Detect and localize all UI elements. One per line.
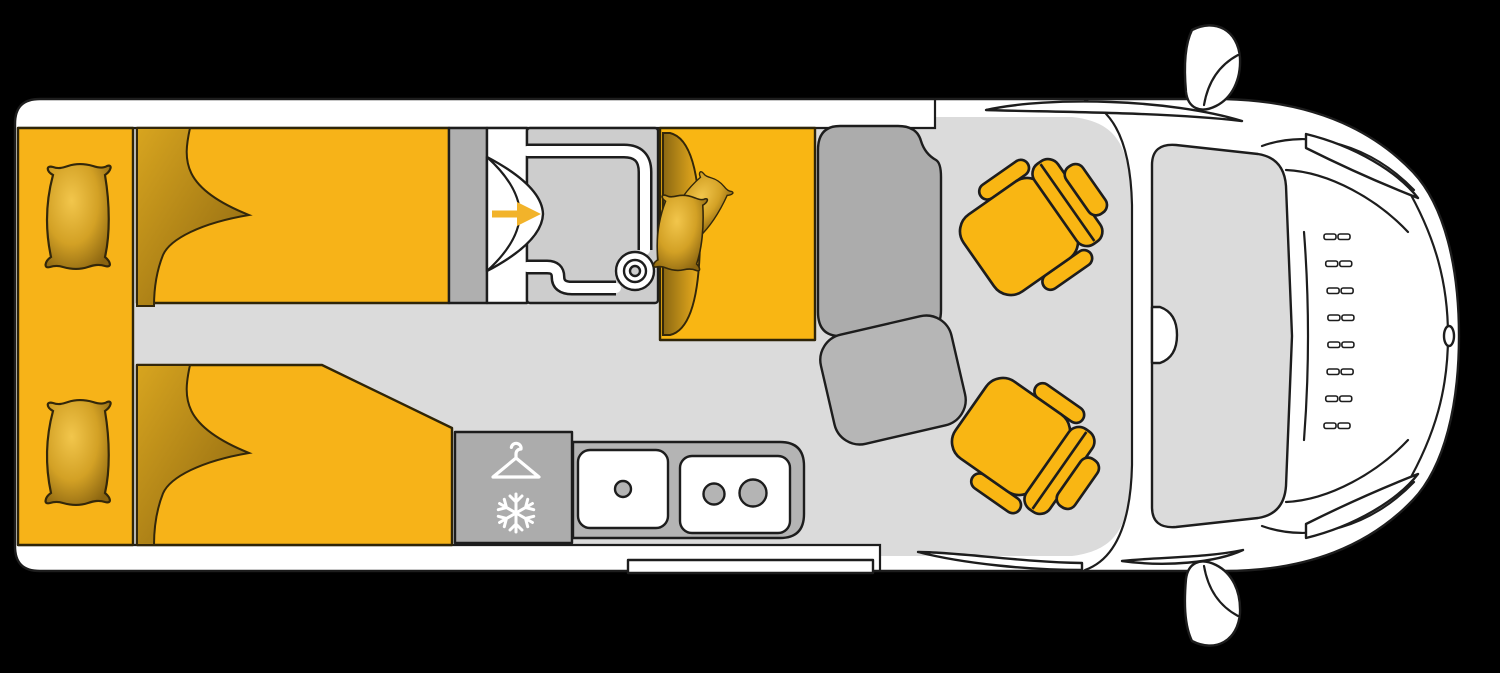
grille-slat [1328,315,1340,321]
grille-slat [1341,369,1353,375]
stove-burner-small [704,484,725,505]
bed-top-pillow [46,164,111,269]
grille-slat [1338,234,1350,240]
side-mirror-top [1185,25,1240,109]
floorplan-stage [0,0,1500,673]
grille-slat [1342,315,1354,321]
grille-slat [1327,369,1339,375]
shower-drain [616,252,654,290]
wardrobe-strip [449,128,487,303]
grille-slat [1324,423,1336,429]
dinette-table [818,126,941,336]
grille-slat [1324,234,1336,240]
brand-emblem [1444,326,1454,346]
bed-bottom-pillow [46,400,111,505]
stove-burner-large [740,480,767,507]
grille-slat [1327,288,1339,294]
entry-step [628,560,873,573]
bathroom [487,128,658,303]
grille-slat [1326,396,1338,402]
side-mirror-bottom [1185,561,1240,645]
grille-slat [1340,261,1352,267]
grille-slat [1328,342,1340,348]
grille-slat [1341,288,1353,294]
sink-drain [615,481,631,497]
grille-slat [1338,423,1350,429]
grille-slat [1342,342,1354,348]
stove [680,456,790,533]
motorhome-floorplan [0,0,1500,673]
grille-slat [1340,396,1352,402]
grille-slat [1326,261,1338,267]
kitchen [455,432,804,543]
